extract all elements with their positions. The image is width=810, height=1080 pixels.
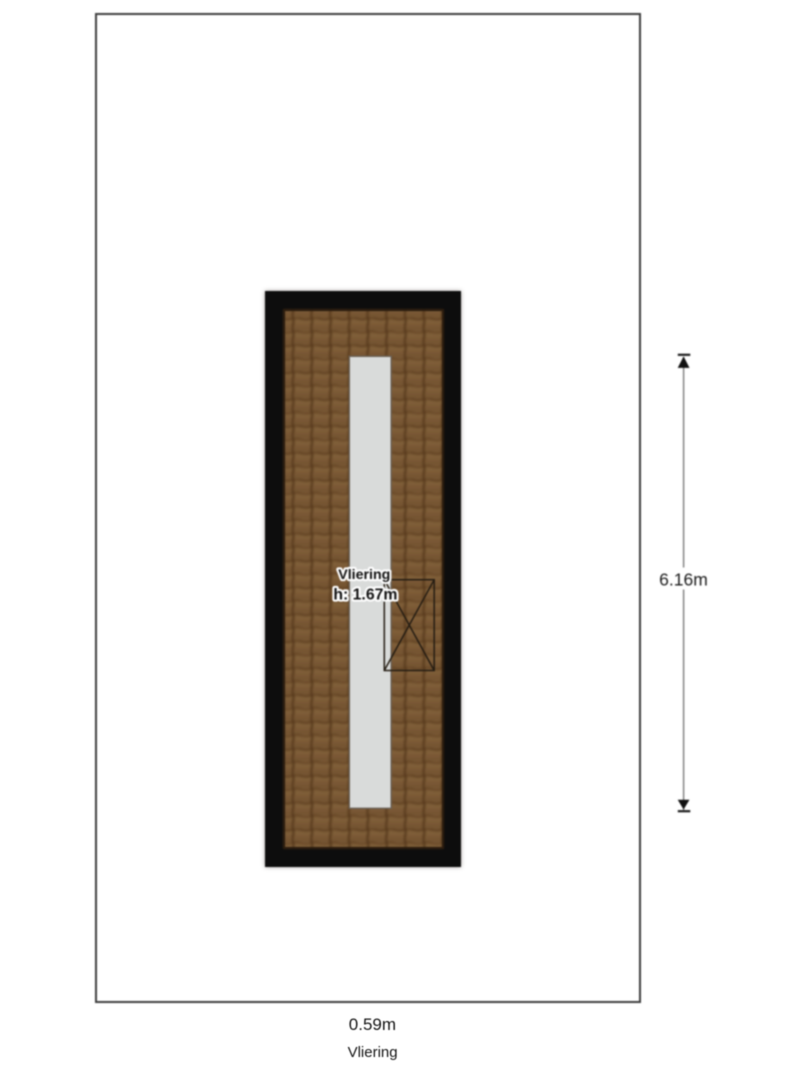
svg-text:h: 1.67m: h: 1.67m [333, 586, 397, 603]
svg-text:Vliering: Vliering [338, 567, 390, 583]
svg-text:6.16m: 6.16m [659, 570, 708, 590]
